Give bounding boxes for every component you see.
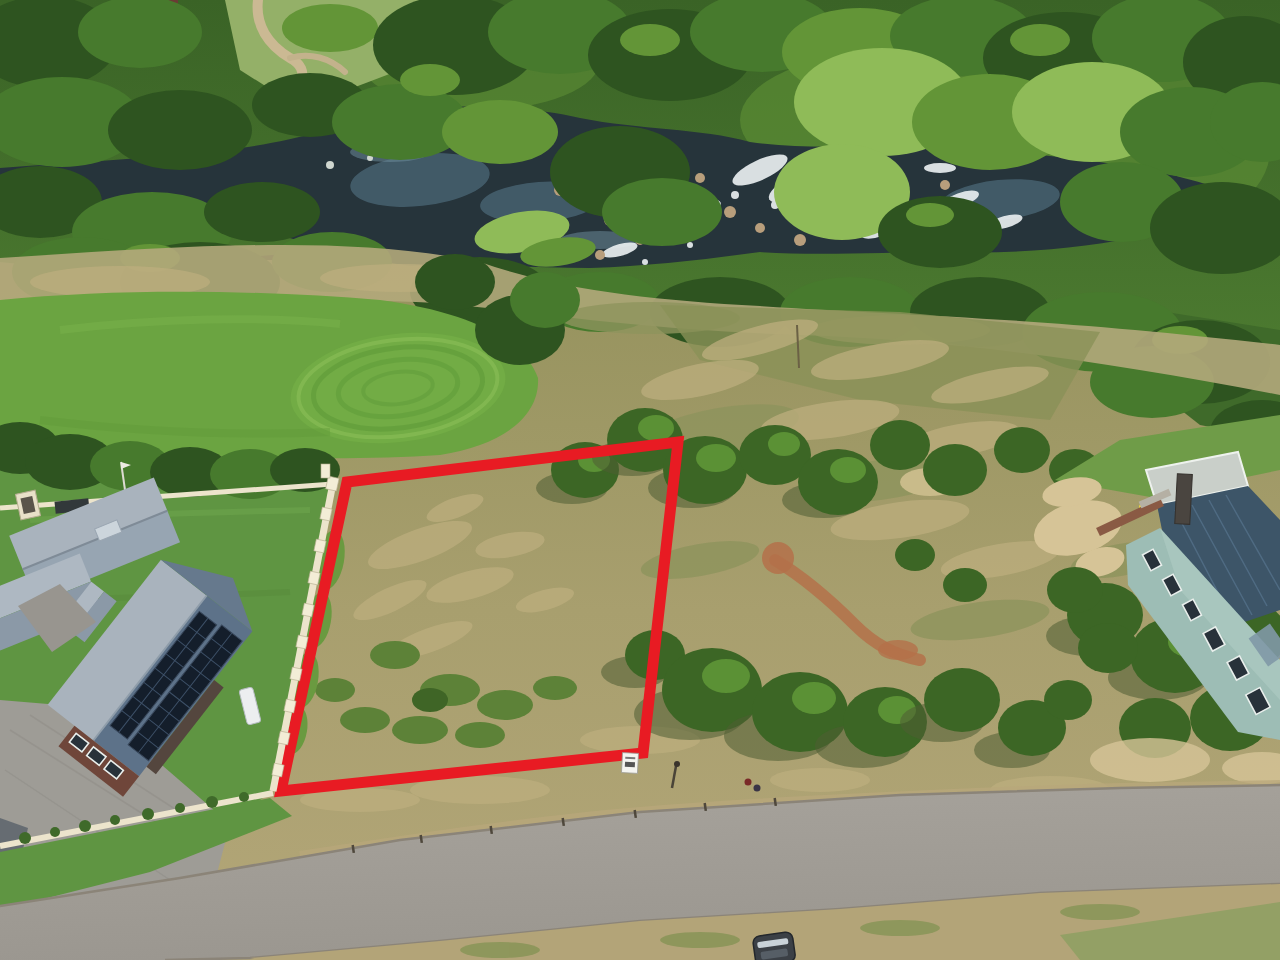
- aerial-photo-canvas: [0, 0, 1280, 960]
- plot-sign: [621, 753, 638, 774]
- person: [745, 779, 752, 786]
- car: [752, 931, 796, 960]
- aerial-photo: [0, 0, 1280, 960]
- teal-chimney: [1175, 474, 1193, 525]
- person: [754, 785, 761, 792]
